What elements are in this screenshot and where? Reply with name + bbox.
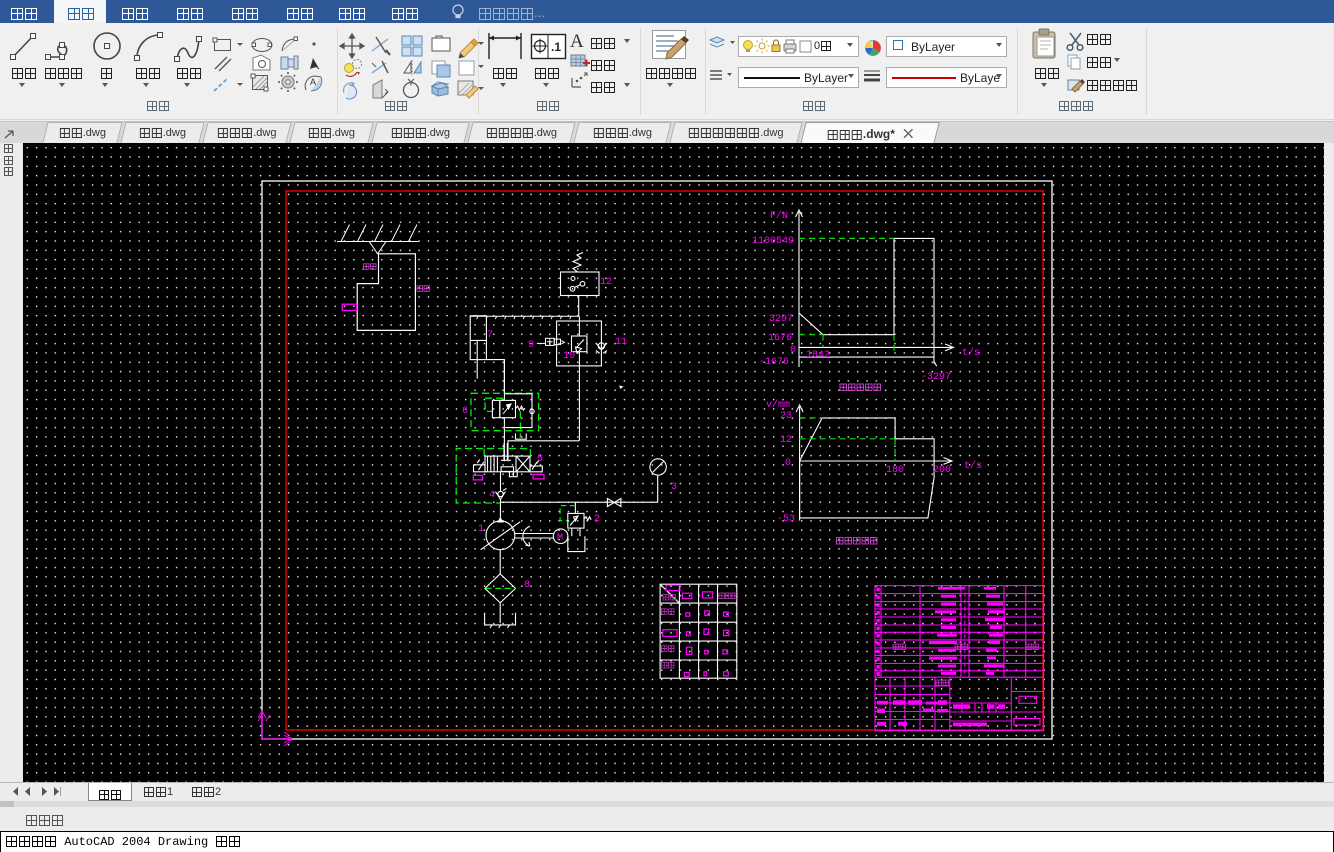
- svg-text:23: 23: [780, 411, 792, 422]
- svg-text:180: 180: [886, 465, 904, 476]
- svg-text:-53: -53: [777, 514, 795, 525]
- svg-text:8: 8: [524, 580, 530, 591]
- svg-text:5: 5: [537, 454, 543, 465]
- svg-text:t/s: t/s: [964, 460, 982, 472]
- svg-text:1842: 1842: [806, 350, 830, 361]
- svg-text:1676: 1676: [768, 333, 792, 344]
- svg-text:A: A: [310, 77, 316, 87]
- svg-text:9: 9: [528, 340, 534, 351]
- svg-text:4: 4: [489, 490, 495, 501]
- svg-text:2: 2: [594, 514, 600, 525]
- svg-text:12: 12: [780, 435, 792, 446]
- svg-text:-3297: -3297: [921, 372, 951, 383]
- svg-text:12: 12: [600, 277, 612, 288]
- svg-text:.1: .1: [551, 40, 561, 54]
- svg-text:v/mm: v/mm: [766, 399, 790, 411]
- svg-text:7: 7: [487, 330, 493, 341]
- svg-text:200: 200: [933, 465, 951, 476]
- svg-text:11: 11: [615, 337, 627, 348]
- svg-text:0: 0: [790, 345, 796, 356]
- svg-text:3: 3: [671, 482, 677, 493]
- svg-text:t/s: t/s: [962, 347, 980, 359]
- svg-text:6: 6: [462, 406, 468, 417]
- svg-text:1100549: 1100549: [752, 236, 794, 247]
- svg-text:1: 1: [478, 524, 484, 535]
- svg-text:-1676: -1676: [759, 357, 789, 368]
- svg-text:0: 0: [785, 458, 791, 469]
- svg-text:3297: 3297: [769, 314, 793, 325]
- svg-text:F/N: F/N: [770, 210, 788, 222]
- svg-text:10: 10: [563, 351, 575, 362]
- svg-text:A: A: [570, 31, 584, 52]
- svg-text:M: M: [557, 533, 563, 544]
